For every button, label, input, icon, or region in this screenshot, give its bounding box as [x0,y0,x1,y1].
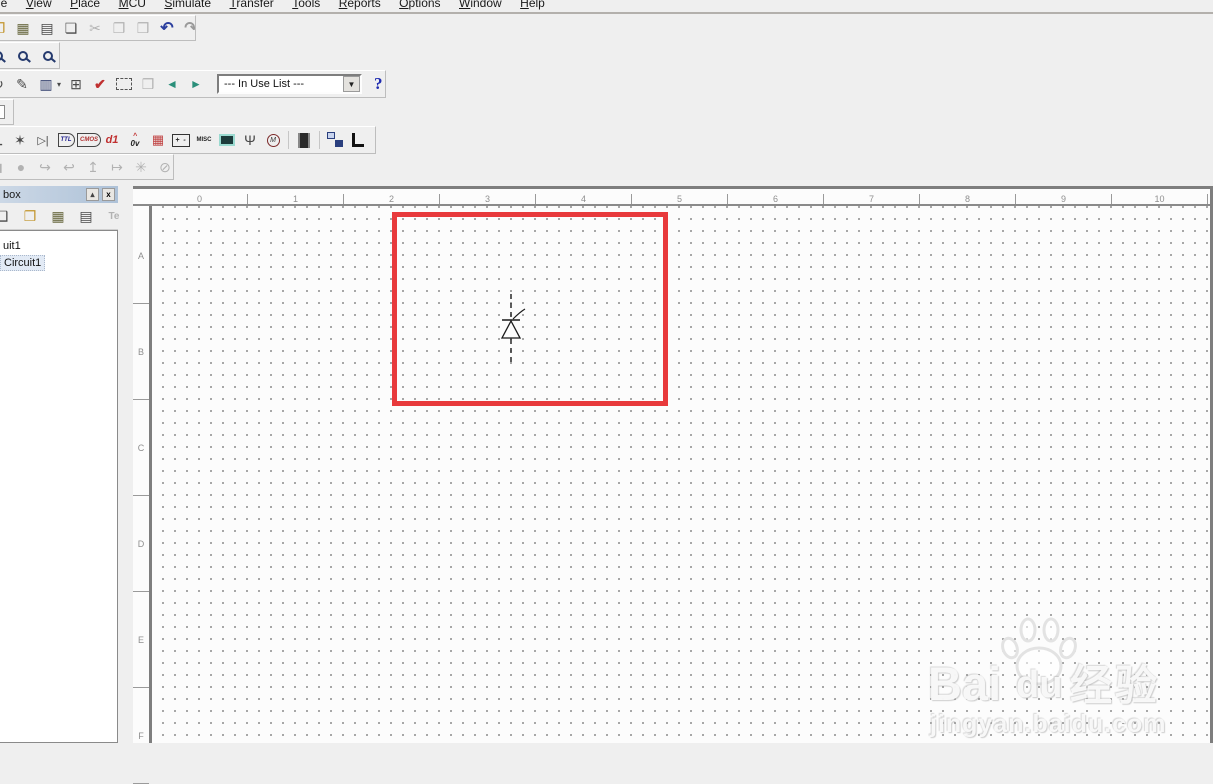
paste-icon[interactable]: ❒ [132,18,154,38]
simulation-toolbar: ◼ ● ↪ ↩ ↥ ↦ ✳ ⊘ [0,154,174,180]
menu-file[interactable]: File [0,0,7,10]
ruler-letter: C [133,400,149,496]
ruler-number: 8 [920,194,1016,204]
sim-dot-icon[interactable]: ● [10,157,32,177]
place-power-icon[interactable]: + - [170,130,192,150]
design-toolbox-tree: uit1 Circuit1 [0,230,118,743]
step-out-icon[interactable]: ↥ [82,157,104,177]
design-toolbox-title: box [3,189,21,201]
te-icon[interactable]: Te [103,206,125,226]
ruler-number: 7 [824,194,920,204]
ruler-letter: F [133,688,149,784]
ruler-number: 5 [632,194,728,204]
vertical-ruler: ABCDEF [133,206,149,743]
design-toolbox-toolbar: ❑ ❐ ▦ ▤ Te [0,203,118,230]
save-file-icon[interactable]: ▦ [47,206,69,226]
combo-dropdown-button[interactable]: ▼ [343,76,360,92]
hierarchical-block-icon[interactable] [324,130,346,150]
place-rf-icon[interactable]: Ψ [239,130,261,150]
grapher-icon[interactable]: ▥ [35,74,57,94]
watermark-cn-text: 经验 [1070,652,1160,713]
place-diode-icon[interactable]: ▷| [32,130,54,150]
main-toolbar: ↻ ✎ ▥ ▾ ⊞ ✔ ❒ ◄ ► --- In Use List --- ▼ … [0,70,386,98]
zoom-out-icon[interactable] [12,46,34,66]
place-segment-indicator-icon[interactable]: ▦ [147,130,169,150]
clipped-toolbar [0,99,14,125]
zoom-toolbar [0,42,60,69]
menu-place[interactable]: Place [70,0,100,10]
place-indicator-icon[interactable]: ^0v [124,130,146,150]
ruler-letter: A [133,208,149,304]
component-toolbar: ⊥ ✶ ▷| TTL CMOS d1 ^0v ▦ + - MISC Ψ M [0,126,376,154]
standard-toolbar: ❐ ▦ ▤ ❏ ✂ ❐ ❒ ↶ ↷ [0,15,196,41]
menu-mcu[interactable]: MCU [119,0,146,10]
place-misc-icon[interactable]: MISC [193,130,215,150]
grapher-caret-icon[interactable]: ▾ [55,74,63,94]
panel-restore-button[interactable]: ▴ [86,188,99,201]
watermark-brand-left: Bai [928,656,1001,711]
design-toolbox-panel: box ▴ x ❑ ❐ ▦ ▤ Te uit1 Circuit1 [0,186,118,743]
tree-item-circuit1[interactable]: Circuit1 [0,255,45,271]
step-into-icon[interactable]: ↪ [34,157,56,177]
capture-area-icon[interactable] [113,74,135,94]
save-icon[interactable]: ▦ [12,18,34,38]
undo-icon[interactable]: ↶ [156,18,178,38]
rotate-icon[interactable]: ↻ [0,74,9,94]
stop-icon[interactable]: ⊘ [154,157,174,177]
watermark-brand-right: du [1016,664,1062,707]
menu-window[interactable]: Window [459,0,502,10]
in-use-list-value: --- In Use List --- [224,78,304,90]
menu-transfer[interactable]: Transfer [230,0,274,10]
open-file-icon[interactable]: ❐ [19,206,41,226]
menu-options[interactable]: Options [399,0,440,10]
back-arrow-icon[interactable]: ◄ [161,74,183,94]
zoom-full-icon[interactable] [37,46,59,66]
ruler-number: 10 [1112,194,1208,204]
open-icon[interactable]: ❐ [0,18,10,38]
place-peripherals-icon[interactable] [216,130,238,150]
place-mcu-icon[interactable] [293,130,315,150]
place-transistor-icon[interactable]: ✶ [9,130,31,150]
menu-bar: File View Place MCU Simulate Transfer To… [0,0,1213,10]
ruler-number: 6 [728,194,824,204]
sim-square-icon[interactable]: ◼ [0,157,8,177]
menu-view[interactable]: View [26,0,52,10]
horizontal-ruler: 012345678910 [133,189,1210,206]
menu-help[interactable]: Help [520,0,545,10]
forward-arrow-icon[interactable]: ► [185,74,207,94]
component-wizard-icon[interactable]: ✎ [11,74,33,94]
schematic-window: 012345678910 ABCDEF Bai [133,186,1213,743]
menu-simulate[interactable]: Simulate [164,0,211,10]
copy-icon[interactable]: ❐ [108,18,130,38]
ruler-letter: E [133,592,149,688]
postprocessor-icon[interactable]: ⊞ [65,74,87,94]
zoom-in-icon[interactable] [0,46,9,66]
in-use-list-combo[interactable]: --- In Use List --- ▼ [217,74,362,94]
menu-tools[interactable]: Tools [292,0,320,10]
place-electromechanical-icon[interactable]: M [262,130,284,150]
run-to-cursor-icon[interactable]: ↦ [106,157,128,177]
place-cmos-icon[interactable]: CMOS [78,130,100,150]
redo-icon[interactable]: ↷ [180,18,196,38]
new-document-icon[interactable]: ❑ [0,206,13,226]
ruler-letter: B [133,304,149,400]
clipped-icon[interactable] [0,105,5,119]
diode-ghost [490,288,534,372]
place-ttl-icon[interactable]: TTL [55,130,77,150]
ruler-number: 1 [248,194,344,204]
cut-icon[interactable]: ✂ [84,18,106,38]
ruler-number: 4 [536,194,632,204]
help-icon[interactable]: ? [374,74,383,94]
panel-close-button[interactable]: x [102,188,115,201]
erc-check-icon[interactable]: ✔ [89,74,111,94]
ruler-number: 0 [152,194,248,204]
ruler-number: 2 [344,194,440,204]
print-preview-icon[interactable]: ❏ [60,18,82,38]
place-source-icon[interactable]: ⊥ [0,130,8,150]
pause-icon[interactable]: ✳ [130,157,152,177]
place-bus-icon[interactable] [347,130,369,150]
ruler-number: 9 [1016,194,1112,204]
watermark: Bai du 经验 jingyan.baidu.com [920,612,1210,742]
ruler-number: 3 [440,194,536,204]
menu-reports[interactable]: Reports [339,0,381,10]
watermark-url: jingyan.baidu.com [930,710,1166,739]
schematic-sheet[interactable]: Bai du 经验 jingyan.baidu.com [152,206,1210,743]
design-toolbox-titlebar[interactable]: box ▴ x [0,186,118,203]
tree-item-root[interactable]: uit1 [0,239,24,253]
print-icon[interactable]: ▤ [36,18,58,38]
ruler-letter: D [133,496,149,592]
menu-separator [0,12,1213,14]
doc-arrow-icon[interactable]: ▤ [75,206,97,226]
back-annotate-icon[interactable]: ❒ [137,74,159,94]
step-over-icon[interactable]: ↩ [58,157,80,177]
place-misc-digital-icon[interactable]: d1 [101,130,123,150]
